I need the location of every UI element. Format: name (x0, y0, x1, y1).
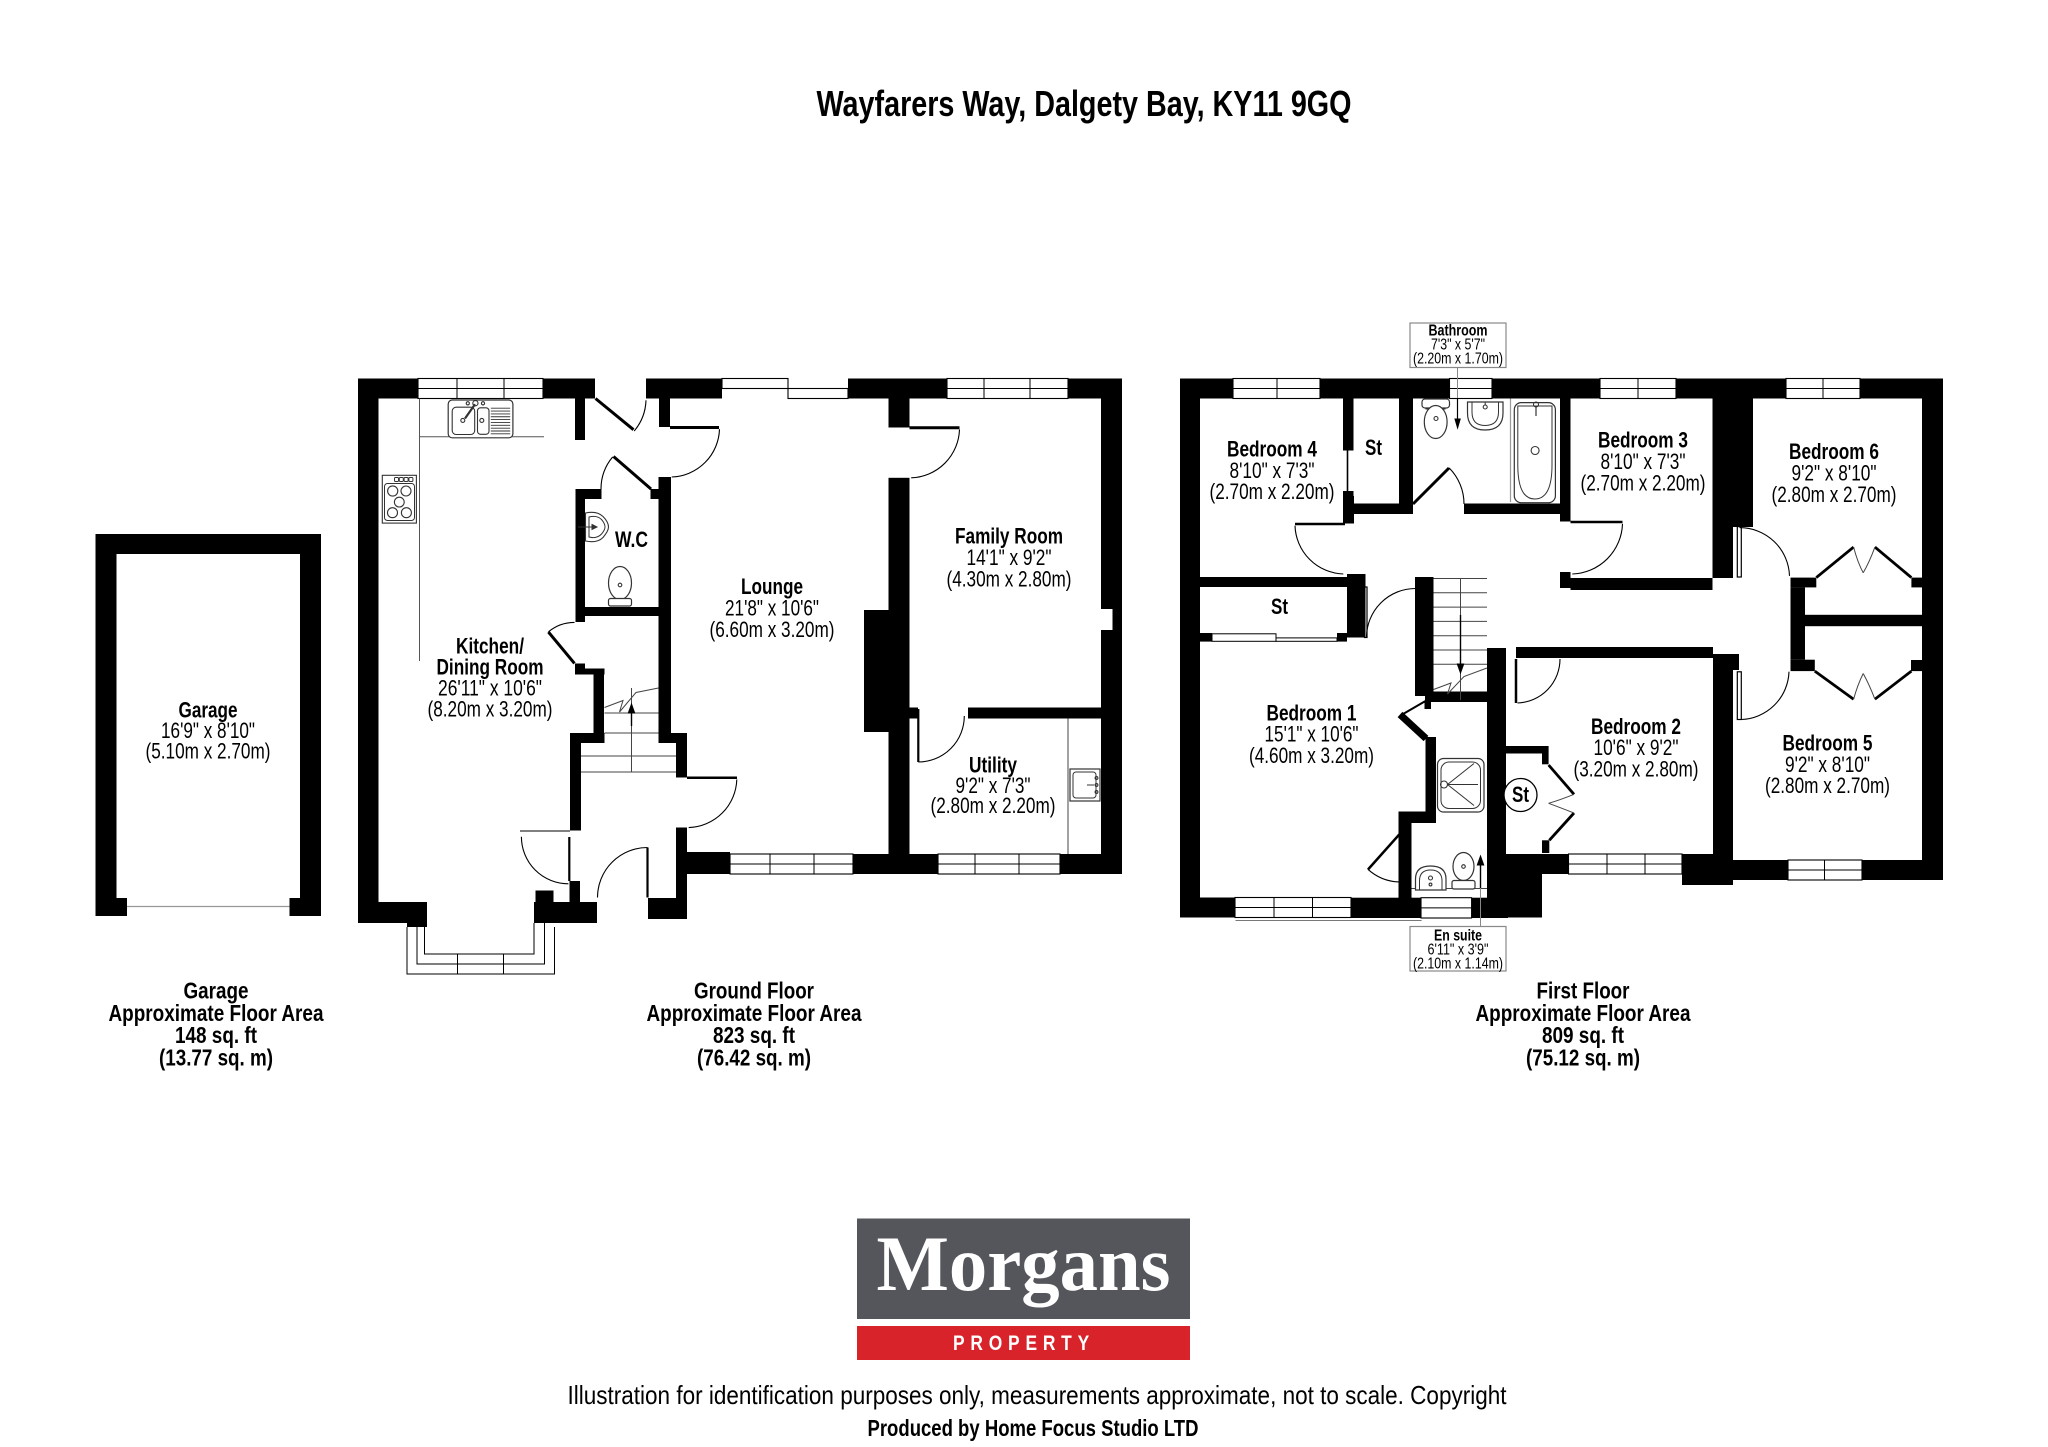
svg-text:(2.20m x 1.70m): (2.20m x 1.70m) (1413, 351, 1503, 368)
svg-text:Morgans: Morgans (877, 1220, 1171, 1307)
svg-text:(2.70m x 2.20m): (2.70m x 2.20m) (1581, 471, 1706, 496)
svg-text:(2.80m x 2.70m): (2.80m x 2.70m) (1772, 482, 1897, 507)
svg-text:(8.20m x 3.20m): (8.20m x 3.20m) (428, 697, 553, 722)
svg-text:(4.60m x 3.20m): (4.60m x 3.20m) (1249, 743, 1374, 768)
svg-text:St: St (1271, 594, 1289, 619)
svg-text:(2.70m x 2.20m): (2.70m x 2.20m) (1210, 479, 1335, 504)
svg-text:(13.77 sq. m): (13.77 sq. m) (159, 1044, 273, 1070)
svg-text:(4.30m x 2.80m): (4.30m x 2.80m) (947, 566, 1072, 591)
svg-text:Wayfarers Way, Dalgety Bay, KY: Wayfarers Way, Dalgety Bay, KY11 9GQ (817, 83, 1352, 124)
svg-text:PROPERTY: PROPERTY (953, 1332, 1095, 1355)
svg-text:W.C: W.C (615, 527, 648, 552)
svg-text:Illustration for identificatio: Illustration for identification purposes… (568, 1380, 1508, 1410)
svg-text:(2.10m x 1.14m): (2.10m x 1.14m) (1413, 956, 1503, 973)
svg-text:St: St (1365, 435, 1383, 460)
svg-text:St: St (1512, 782, 1530, 807)
svg-text:(2.80m x 2.70m): (2.80m x 2.70m) (1765, 773, 1890, 798)
svg-text:(75.12 sq. m): (75.12 sq. m) (1526, 1044, 1640, 1070)
svg-text:Produced by Home Focus Studio: Produced by Home Focus Studio LTD (868, 1415, 1199, 1441)
svg-text:(6.60m x 3.20m): (6.60m x 3.20m) (710, 617, 835, 642)
svg-text:(3.20m x 2.80m): (3.20m x 2.80m) (1574, 757, 1699, 782)
svg-text:(5.10m x 2.70m): (5.10m x 2.70m) (146, 739, 271, 764)
svg-text:(76.42 sq. m): (76.42 sq. m) (697, 1044, 811, 1070)
svg-text:(2.80m x 2.20m): (2.80m x 2.20m) (931, 793, 1056, 818)
